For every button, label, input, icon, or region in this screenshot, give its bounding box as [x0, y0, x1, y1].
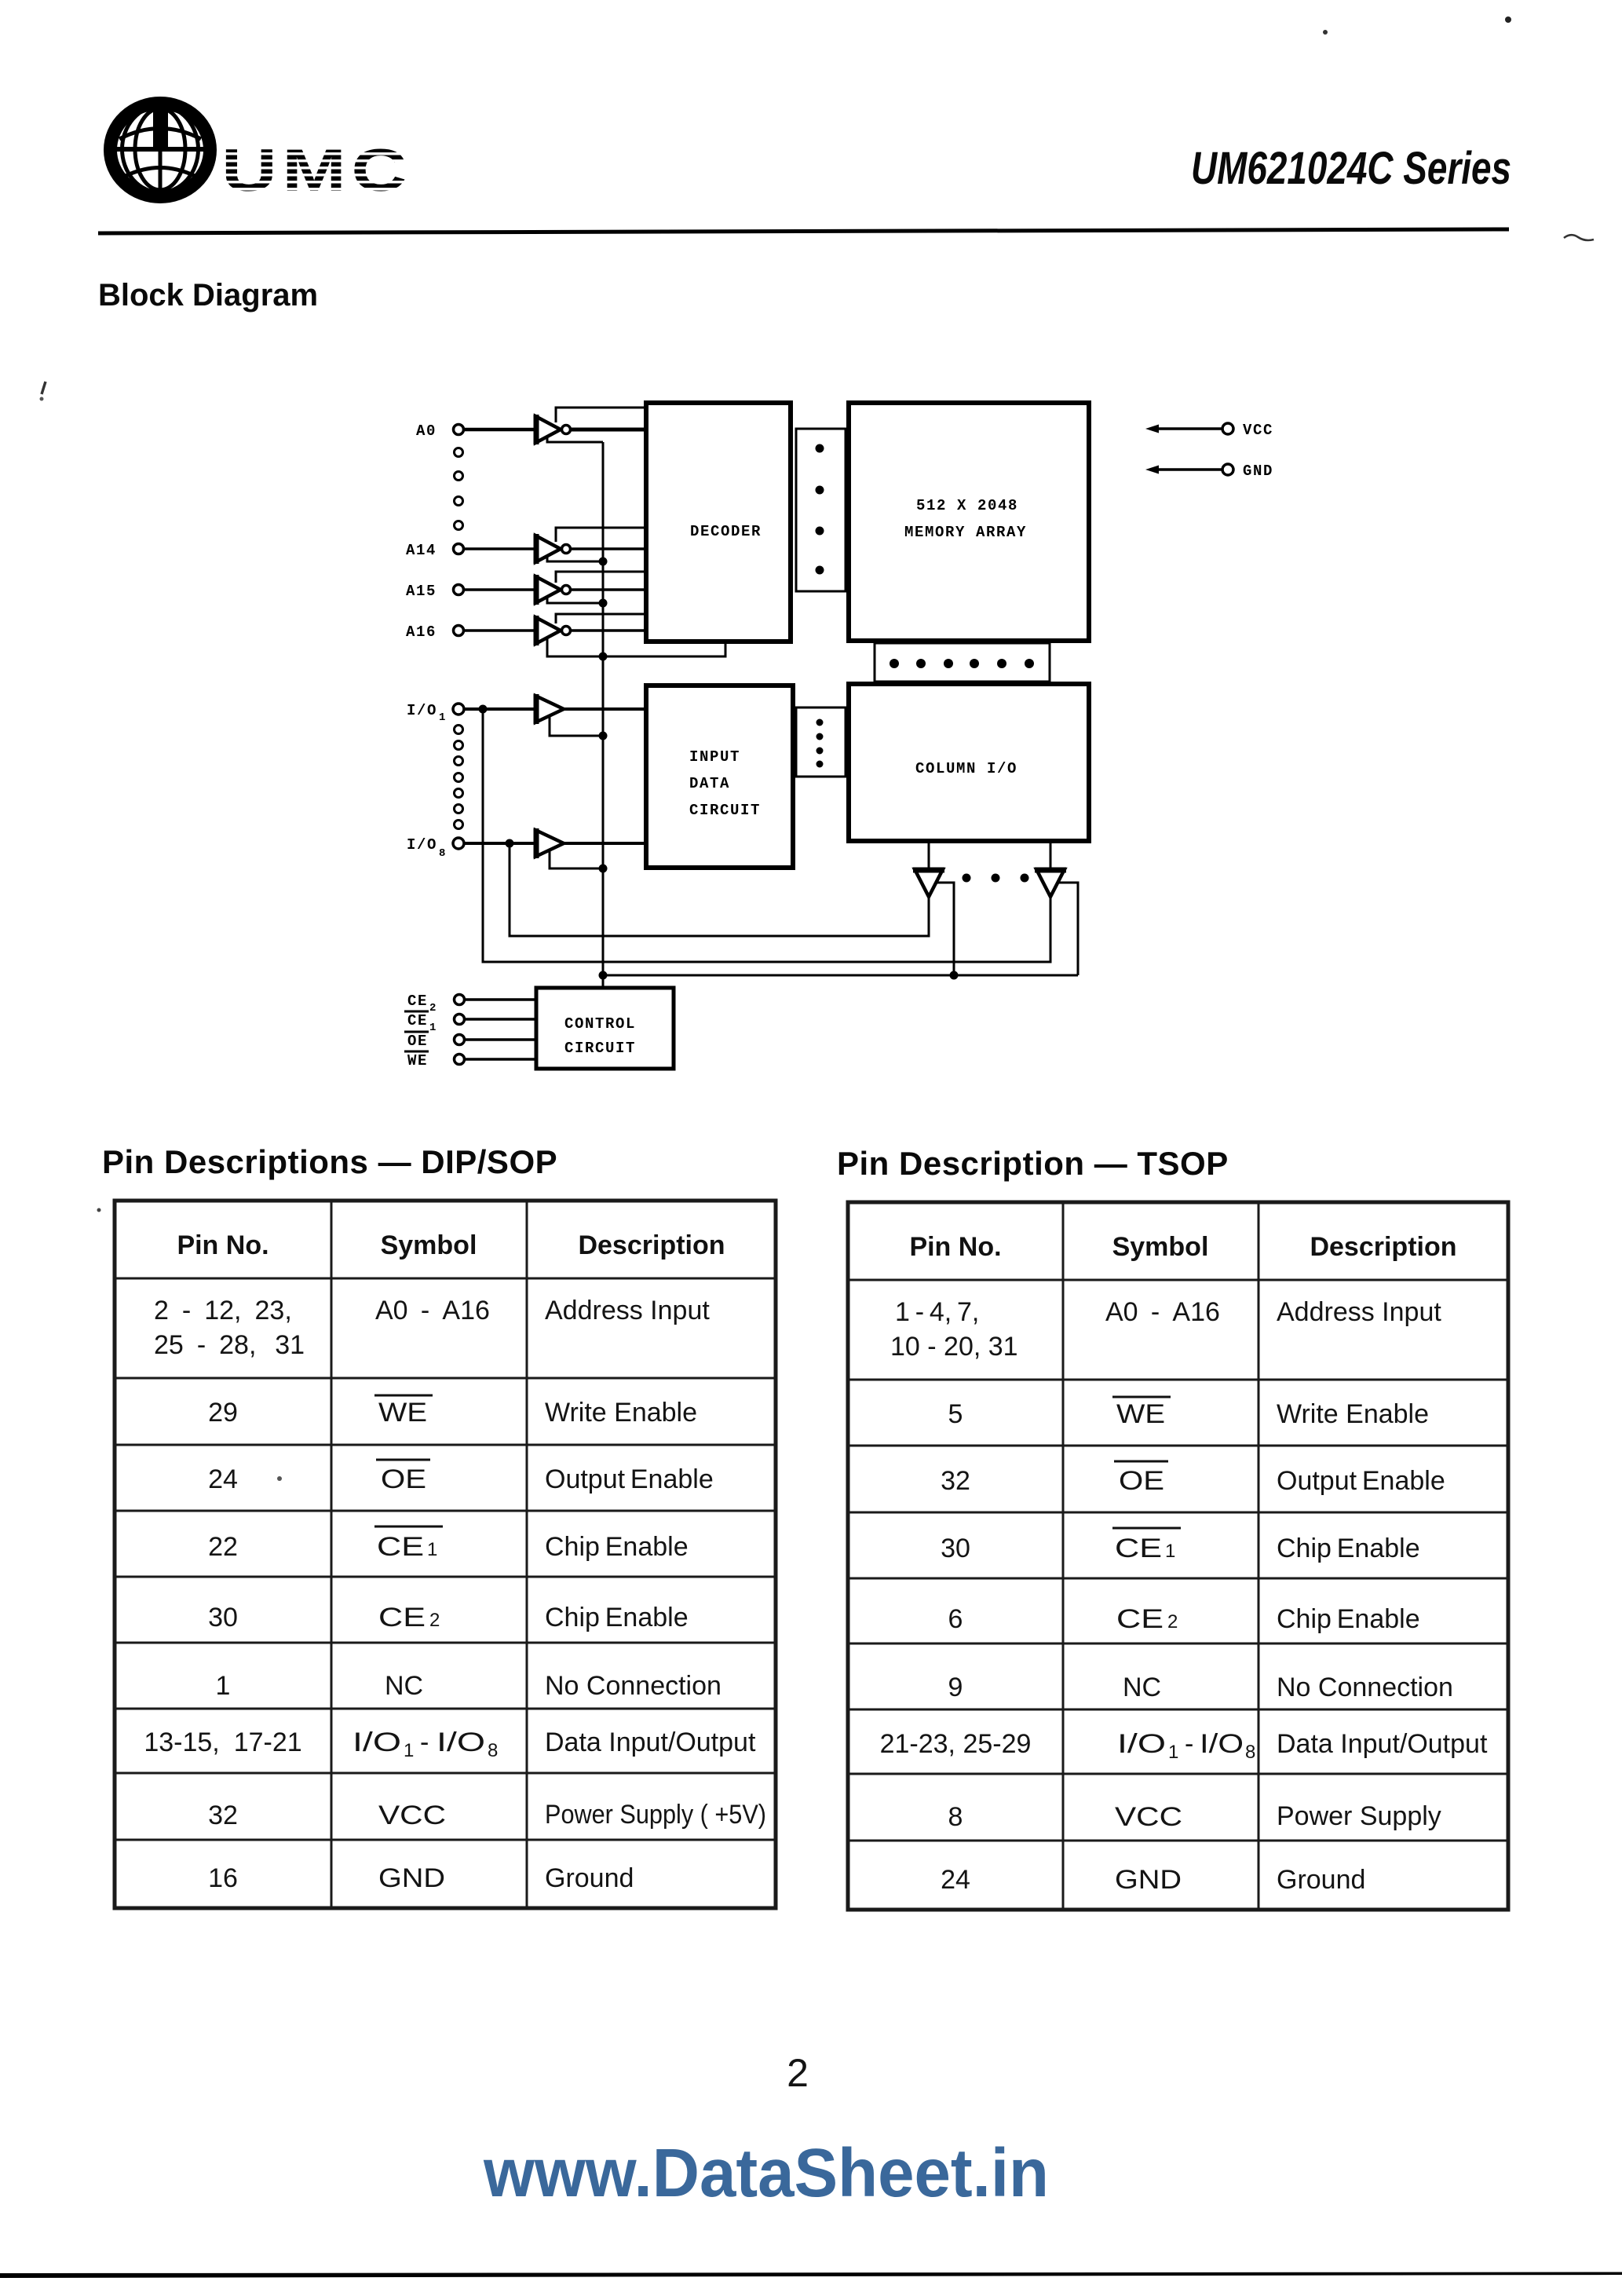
svg-text:CE: CE [378, 1603, 426, 1632]
svg-text:CIRCUIT: CIRCUIT [689, 802, 761, 819]
svg-text:UM621024C Series: UM621024C Series [1191, 143, 1511, 194]
svg-text:A16: A16 [406, 623, 437, 641]
svg-text:I/O: I/O [407, 836, 437, 854]
svg-text:GND: GND [1115, 1865, 1182, 1895]
svg-text:2: 2 [787, 2051, 809, 2095]
svg-text:24: 24 [941, 1865, 970, 1895]
svg-text:I/O: I/O [1117, 1729, 1166, 1759]
svg-text:Chip Enable: Chip Enable [545, 1532, 689, 1562]
svg-text:24: 24 [208, 1464, 238, 1494]
svg-text:CIRCUIT: CIRCUIT [564, 1040, 636, 1057]
svg-text:VCC: VCC [1115, 1802, 1182, 1832]
svg-text:A0 - A16: A0 - A16 [375, 1296, 490, 1325]
svg-text:CE: CE [1115, 1534, 1162, 1563]
svg-text:Description: Description [578, 1230, 725, 1260]
svg-text:6: 6 [948, 1604, 963, 1634]
svg-text:VCC: VCC [378, 1801, 446, 1830]
svg-text:DATA: DATA [689, 775, 730, 792]
svg-text:NC: NC [1123, 1673, 1161, 1702]
svg-text:10 - 20, 31: 10 - 20, 31 [890, 1332, 1018, 1362]
svg-text:Write Enable: Write Enable [1277, 1399, 1429, 1429]
svg-text:Pin Description — TSOP: Pin Description — TSOP [837, 1145, 1229, 1182]
svg-text:Ground: Ground [545, 1863, 634, 1893]
svg-text:21-23, 25-29: 21-23, 25-29 [880, 1729, 1032, 1759]
svg-text:Chip Enable: Chip Enable [545, 1603, 689, 1632]
svg-text:Chip Enable: Chip Enable [1277, 1534, 1420, 1563]
svg-text:512 X 2048: 512 X 2048 [916, 497, 1018, 514]
svg-text:8: 8 [439, 847, 447, 860]
svg-text:I/O: I/O [1200, 1729, 1244, 1759]
svg-text:8: 8 [1245, 1742, 1255, 1763]
svg-text:25 - 28, 31: 25 - 28, 31 [154, 1330, 305, 1360]
svg-text:2: 2 [429, 1610, 440, 1631]
svg-text:CE: CE [377, 1532, 424, 1562]
svg-text:32: 32 [208, 1801, 238, 1830]
svg-text:Pin No.: Pin No. [177, 1230, 269, 1260]
svg-text:CE: CE [1116, 1604, 1164, 1634]
svg-text:1: 1 [1168, 1742, 1178, 1763]
svg-text:8: 8 [948, 1802, 963, 1832]
svg-text:1: 1 [439, 711, 447, 724]
svg-text:Description: Description [1310, 1232, 1456, 1262]
svg-text:Pin No.: Pin No. [909, 1232, 1001, 1262]
svg-text:1: 1 [216, 1671, 231, 1701]
svg-text:No Connection: No Connection [1277, 1673, 1453, 1702]
svg-text:1 - 4, 7,: 1 - 4, 7, [895, 1297, 979, 1327]
svg-text:1: 1 [427, 1539, 437, 1560]
svg-text:INPUT: INPUT [689, 748, 740, 766]
svg-text:-: - [420, 1727, 429, 1757]
svg-text:-: - [1185, 1729, 1193, 1759]
svg-text:1: 1 [404, 1740, 414, 1761]
svg-text:WE: WE [407, 1052, 428, 1069]
svg-text:Output Enable: Output Enable [545, 1464, 714, 1494]
svg-text:I/O: I/O [407, 702, 437, 719]
svg-text:DECODER: DECODER [690, 523, 762, 540]
svg-text:2: 2 [429, 1002, 437, 1015]
svg-text:NC: NC [385, 1671, 423, 1701]
svg-text:OE: OE [1119, 1466, 1164, 1496]
svg-text:COLUMN I/O: COLUMN I/O [915, 760, 1017, 777]
svg-text:Chip Enable: Chip Enable [1277, 1604, 1420, 1634]
svg-text:No Connection: No Connection [545, 1671, 721, 1701]
svg-text:8: 8 [488, 1740, 498, 1761]
svg-text:VCC: VCC [1243, 422, 1273, 439]
svg-text:32: 32 [941, 1466, 970, 1496]
svg-text:30: 30 [941, 1534, 970, 1563]
svg-text:A15: A15 [406, 583, 437, 600]
svg-text:29: 29 [208, 1398, 238, 1428]
svg-text:30: 30 [208, 1603, 238, 1632]
svg-text:I/O: I/O [437, 1727, 485, 1757]
svg-text:5: 5 [948, 1399, 963, 1429]
svg-text:Symbol: Symbol [381, 1230, 477, 1260]
svg-text:13-15, 17-21: 13-15, 17-21 [144, 1727, 301, 1757]
svg-text:Data Input/Output: Data Input/Output [1277, 1729, 1488, 1759]
svg-text:Symbol: Symbol [1112, 1232, 1209, 1262]
svg-text:Power Supply ( +5V): Power Supply ( +5V) [545, 1800, 766, 1830]
svg-text:WE: WE [1116, 1399, 1165, 1429]
svg-text:Pin Descriptions — DIP/SOP: Pin Descriptions — DIP/SOP [102, 1143, 557, 1180]
svg-text:I/O: I/O [353, 1727, 401, 1757]
svg-text:OE: OE [407, 1033, 428, 1050]
svg-text:1: 1 [429, 1022, 437, 1034]
svg-text:Data Input/Output: Data Input/Output [545, 1727, 756, 1757]
svg-text:CE: CE [407, 1012, 428, 1029]
svg-text:www.DataSheet.in: www.DataSheet.in [483, 2135, 1049, 2211]
svg-text:CE: CE [407, 993, 428, 1010]
svg-text:UMC: UMC [221, 137, 412, 204]
svg-text:2: 2 [1167, 1611, 1178, 1632]
svg-text:16: 16 [208, 1863, 238, 1893]
svg-text:A0: A0 [416, 422, 437, 440]
svg-text:GND: GND [1243, 462, 1273, 480]
svg-text:2 - 12, 23,: 2 - 12, 23, [154, 1296, 292, 1325]
svg-text:OE: OE [381, 1464, 426, 1494]
svg-text:MEMORY ARRAY: MEMORY ARRAY [904, 524, 1027, 541]
svg-text:9: 9 [948, 1673, 963, 1702]
svg-text:GND: GND [378, 1863, 445, 1893]
svg-text:Power Supply: Power Supply [1277, 1801, 1441, 1831]
svg-text:WE: WE [378, 1398, 427, 1428]
svg-text:22: 22 [208, 1532, 238, 1562]
svg-text:1: 1 [1165, 1541, 1175, 1562]
svg-text:Address Input: Address Input [1277, 1297, 1441, 1327]
svg-text:A0 - A16: A0 - A16 [1105, 1297, 1220, 1327]
svg-text:CONTROL: CONTROL [564, 1015, 636, 1033]
svg-text:A14: A14 [406, 542, 437, 559]
svg-text:Output Enable: Output Enable [1277, 1466, 1445, 1496]
svg-text:Address Input: Address Input [545, 1296, 710, 1325]
svg-text:Block Diagram: Block Diagram [98, 278, 318, 313]
svg-text:Ground: Ground [1277, 1865, 1365, 1895]
svg-text:Write Enable: Write Enable [545, 1398, 697, 1428]
